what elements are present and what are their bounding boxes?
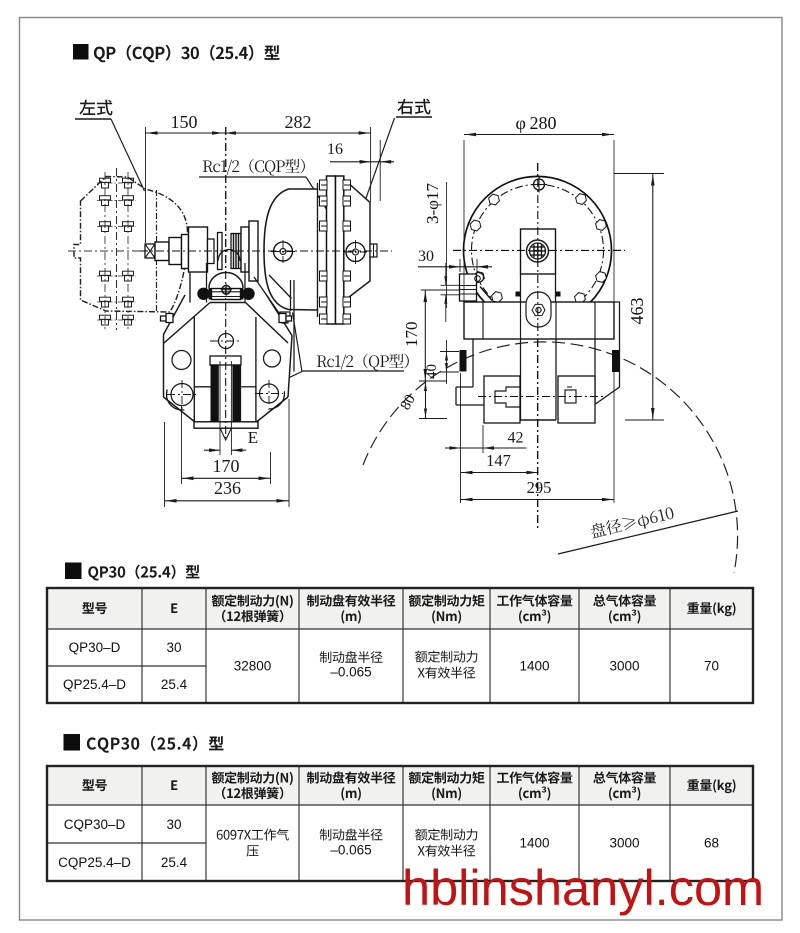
- svg-text:16: 16: [327, 141, 343, 158]
- svg-text:–0.065: –0.065: [330, 665, 371, 680]
- svg-text:25.4: 25.4: [161, 855, 188, 870]
- svg-text:QP25.4–D: QP25.4–D: [63, 677, 126, 692]
- svg-text:42: 42: [508, 430, 524, 447]
- svg-text:30: 30: [166, 640, 181, 655]
- svg-text:3-φ17: 3-φ17: [423, 183, 442, 224]
- svg-text:150: 150: [171, 112, 198, 132]
- svg-text:463: 463: [627, 298, 647, 325]
- svg-text:147: 147: [486, 451, 511, 470]
- svg-text:1400: 1400: [519, 659, 549, 674]
- svg-text:170: 170: [213, 456, 240, 476]
- svg-text:E: E: [248, 428, 258, 447]
- svg-text:3000: 3000: [609, 836, 639, 851]
- svg-text:236: 236: [214, 478, 241, 498]
- svg-text:30: 30: [166, 817, 181, 832]
- svg-text:70: 70: [704, 659, 719, 674]
- svg-text:φ 280: φ 280: [516, 113, 557, 133]
- svg-text:CQP25.4–D: CQP25.4–D: [58, 855, 131, 870]
- svg-text:68: 68: [704, 836, 719, 851]
- svg-text:3000: 3000: [609, 659, 639, 674]
- svg-text:170: 170: [402, 322, 421, 348]
- svg-text:295: 295: [527, 478, 552, 497]
- svg-text:hblinshanyl.com: hblinshanyl.com: [402, 859, 764, 916]
- svg-text:1400: 1400: [519, 836, 549, 851]
- svg-text:32800: 32800: [234, 659, 272, 674]
- svg-text:CQP30–D: CQP30–D: [64, 817, 126, 832]
- svg-text:QP30–D: QP30–D: [69, 640, 121, 655]
- svg-text:30: 30: [418, 248, 434, 265]
- svg-text:–0.065: –0.065: [330, 843, 371, 858]
- svg-text:282: 282: [285, 112, 312, 132]
- svg-text:25.4: 25.4: [161, 677, 188, 692]
- svg-text:40: 40: [424, 364, 440, 379]
